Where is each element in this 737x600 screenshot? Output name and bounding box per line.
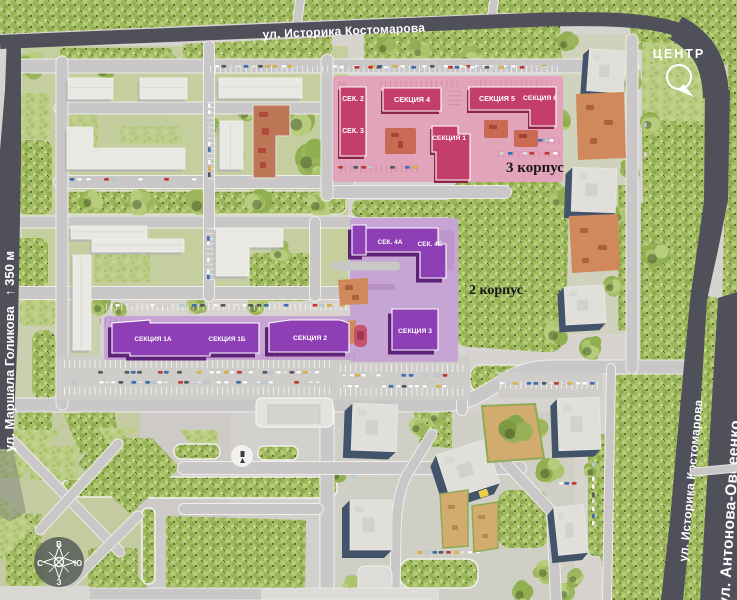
svg-text:СЕК. 3: СЕК. 3 [342, 128, 364, 135]
svg-text:З: З [56, 578, 61, 587]
svg-text:В: В [56, 540, 62, 549]
svg-text:СЕКЦИЯ 1Б: СЕКЦИЯ 1Б [208, 336, 246, 343]
svg-text:ЦЕНТР: ЦЕНТР [653, 47, 705, 61]
svg-text:СЕКЦИЯ 6: СЕКЦИЯ 6 [523, 95, 557, 102]
svg-text:Ю: Ю [74, 559, 82, 568]
svg-text:С: С [37, 559, 43, 568]
svg-text:↑ 350 м: ↑ 350 м [2, 251, 17, 296]
svg-text:СЕКЦИЯ 5: СЕКЦИЯ 5 [479, 94, 515, 103]
svg-text:СЕК. 4Б: СЕК. 4Б [418, 241, 443, 248]
svg-text:2 корпус: 2 корпус [469, 283, 523, 298]
svg-text:СЕКЦИЯ 4: СЕКЦИЯ 4 [394, 95, 430, 104]
svg-text:СЕКЦИЯ 2: СЕКЦИЯ 2 [293, 335, 327, 342]
svg-text:СЕК. 4А: СЕК. 4А [378, 239, 403, 246]
svg-text:ул. Маршала Голикова: ул. Маршала Голикова [2, 305, 17, 452]
svg-text:СЕКЦИЯ 3: СЕКЦИЯ 3 [398, 328, 432, 335]
svg-text:СЕК. 2: СЕК. 2 [342, 96, 364, 103]
svg-text:3 корпус: 3 корпус [506, 160, 564, 176]
svg-text:СЕКЦИЯ 1А: СЕКЦИЯ 1А [134, 336, 172, 343]
svg-text:СЕКЦИЯ 1: СЕКЦИЯ 1 [432, 135, 466, 142]
